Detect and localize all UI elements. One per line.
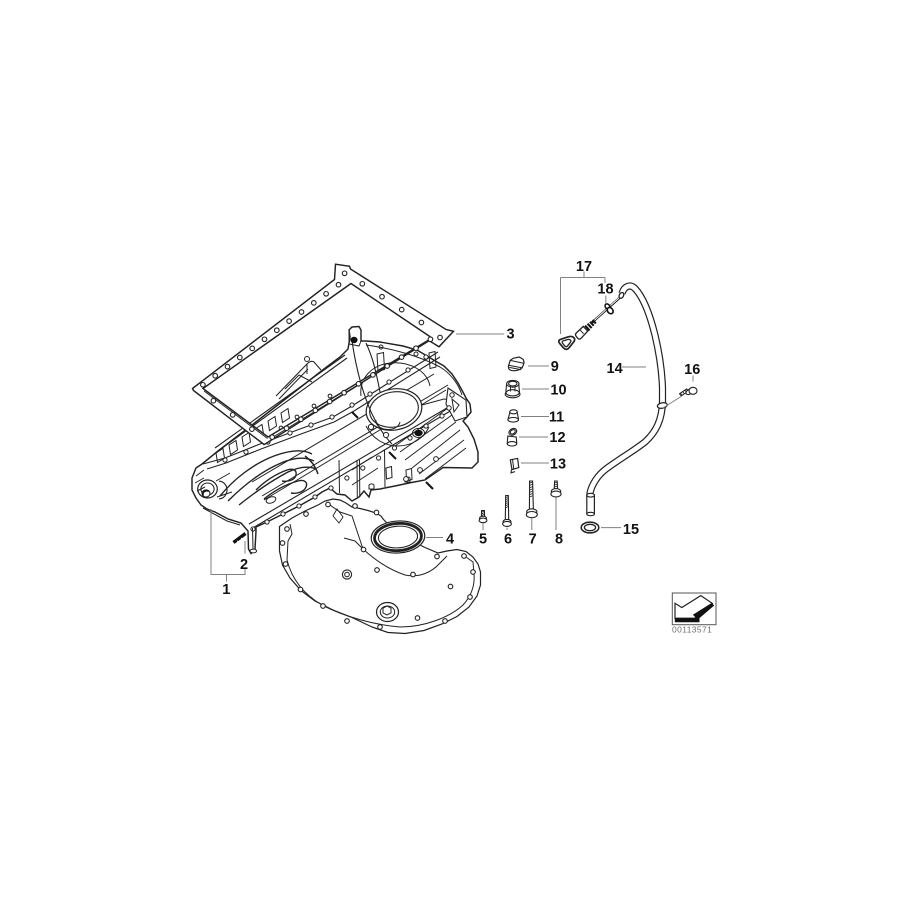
svg-text:15: 15 — [623, 522, 639, 538]
svg-text:16: 16 — [684, 362, 700, 378]
svg-text:14: 14 — [607, 361, 623, 377]
svg-text:7: 7 — [529, 532, 537, 548]
svg-text:2: 2 — [240, 557, 248, 573]
svg-text:4: 4 — [446, 532, 454, 548]
svg-text:6: 6 — [504, 532, 512, 548]
svg-text:13: 13 — [550, 457, 566, 473]
svg-text:11: 11 — [549, 410, 564, 426]
svg-text:1: 1 — [222, 582, 230, 598]
svg-text:5: 5 — [479, 532, 487, 548]
svg-text:00113571: 00113571 — [672, 625, 712, 635]
svg-text:18: 18 — [597, 282, 613, 298]
svg-text:8: 8 — [555, 532, 563, 548]
svg-text:12: 12 — [549, 430, 565, 446]
svg-text:9: 9 — [551, 359, 559, 375]
svg-text:3: 3 — [506, 327, 514, 343]
svg-text:10: 10 — [550, 383, 566, 399]
svg-text:17: 17 — [576, 259, 592, 275]
